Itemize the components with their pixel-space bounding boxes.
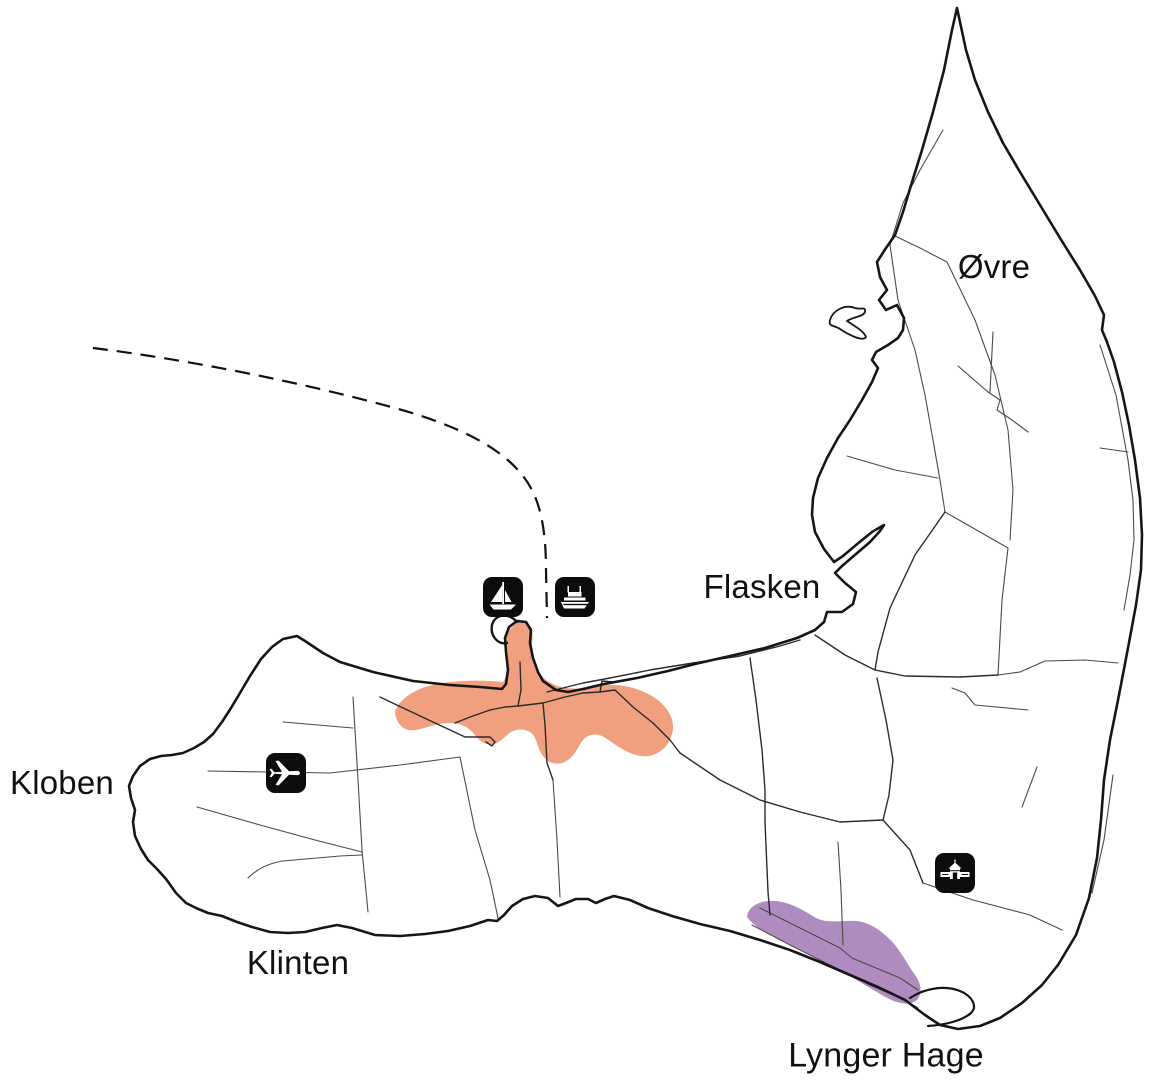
coastline <box>129 8 1142 1029</box>
place-label-ovre: Øvre <box>958 248 1030 286</box>
ferry-icon <box>555 577 595 617</box>
islet <box>830 307 866 339</box>
ferry-route-line <box>93 348 547 618</box>
airplane-icon <box>266 753 306 793</box>
place-label-flasken: Flasken <box>704 568 821 606</box>
place-label-kloben: Kloben <box>10 764 114 802</box>
museum-icon <box>935 853 975 893</box>
heath-area <box>747 901 921 1004</box>
place-label-klinten: Klinten <box>247 944 349 982</box>
island-map: Øvre Flasken Kloben Klinten Lynger Hage <box>0 0 1152 1080</box>
place-label-lynger-hage: Lynger Hage <box>788 1037 984 1076</box>
sailboat-icon <box>483 577 523 617</box>
town-area <box>395 622 673 764</box>
lynger-hage-spit <box>910 988 974 1026</box>
island-map-canvas <box>0 0 1152 1080</box>
